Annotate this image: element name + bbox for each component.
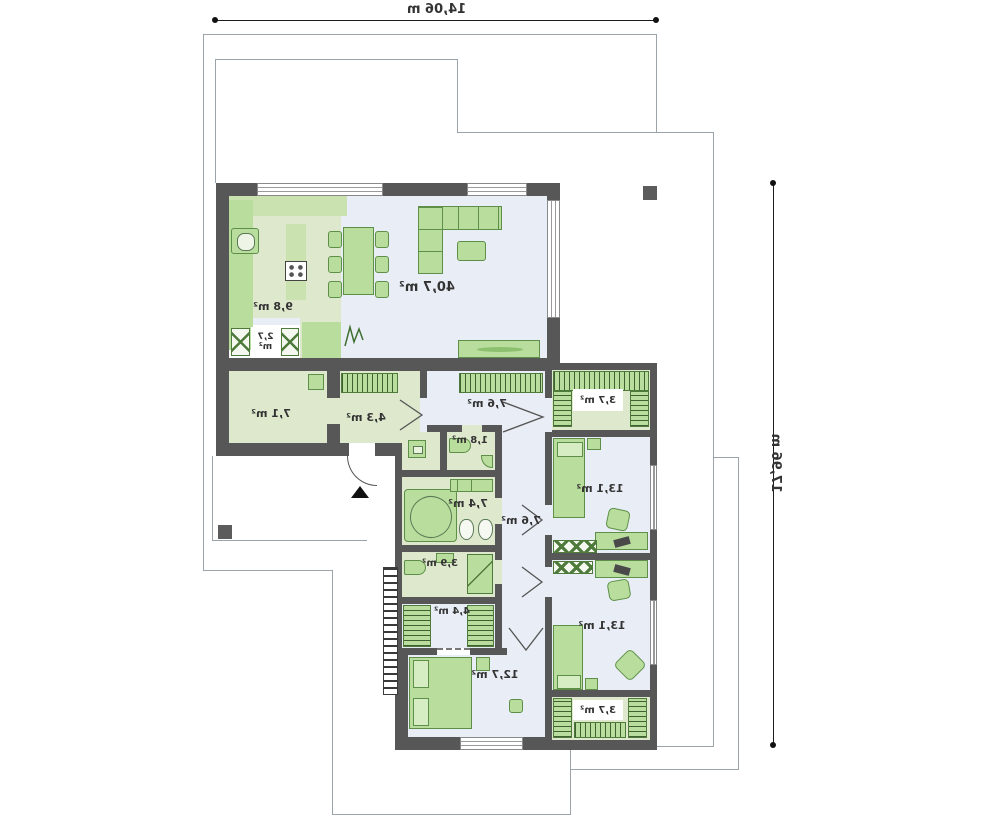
door-swing-symbol bbox=[522, 567, 544, 597]
nightstand bbox=[585, 678, 598, 690]
plot-line bbox=[332, 570, 333, 815]
sink-basin bbox=[237, 233, 255, 251]
kitchen-sink bbox=[231, 228, 259, 254]
dining-chair bbox=[375, 231, 389, 248]
corridor-lower-area-label: 7,6 m² bbox=[483, 515, 559, 527]
door-opening bbox=[545, 398, 552, 432]
floor-plan-canvas: 14,06 m 17,96 m bbox=[0, 0, 1000, 822]
pillow bbox=[413, 698, 429, 726]
utility-area-label: 7,1 m² bbox=[231, 408, 311, 420]
plot-line bbox=[570, 769, 738, 770]
laptop bbox=[613, 536, 631, 548]
plot-line bbox=[570, 746, 571, 815]
living-room-area-label: 40,7 m² bbox=[377, 281, 477, 295]
dashed-opening bbox=[437, 648, 470, 655]
site-marker-square bbox=[643, 186, 657, 200]
dimension-endpoint bbox=[212, 17, 218, 23]
pillow bbox=[413, 660, 429, 688]
dining-table bbox=[343, 227, 374, 295]
dining-chair bbox=[328, 256, 342, 273]
driveway-line bbox=[212, 456, 213, 540]
dining-chair bbox=[328, 231, 342, 248]
dining-chair bbox=[328, 281, 342, 298]
plot-line bbox=[713, 132, 714, 747]
wardrobe-shelves bbox=[628, 698, 647, 738]
door-opening bbox=[462, 425, 482, 432]
plot-line bbox=[332, 814, 571, 815]
plot-line bbox=[203, 570, 333, 571]
pillow bbox=[557, 442, 583, 457]
side-table bbox=[509, 699, 523, 713]
desk bbox=[595, 532, 648, 550]
wardrobe-shelves bbox=[630, 391, 649, 427]
boiler bbox=[308, 374, 324, 390]
window bbox=[650, 600, 657, 665]
bedroom-south-area-label: 13,1 m² bbox=[562, 620, 642, 632]
wc-area-label: 1,8 m² bbox=[430, 435, 510, 446]
plot-line bbox=[215, 59, 216, 183]
desk-chair bbox=[606, 578, 631, 602]
hall-wardrobe bbox=[341, 373, 398, 393]
door-opening bbox=[495, 560, 502, 584]
washing-machine bbox=[408, 440, 426, 458]
bed-single bbox=[553, 438, 585, 518]
door-swing-symbol bbox=[507, 628, 545, 652]
window bbox=[257, 183, 383, 196]
laptop bbox=[613, 564, 631, 576]
toilet bbox=[459, 519, 474, 540]
terrace-window bbox=[547, 200, 560, 318]
dimension-endpoint bbox=[770, 180, 776, 186]
low-wardrobe bbox=[553, 561, 593, 574]
dish bbox=[477, 347, 523, 352]
corridor-lower-floor bbox=[502, 425, 545, 648]
corridor-wardrobe bbox=[459, 373, 543, 393]
door-opening bbox=[545, 567, 552, 597]
desk-chair bbox=[605, 507, 631, 532]
plot-line bbox=[215, 59, 457, 60]
pantry-cabinet bbox=[231, 328, 250, 356]
entrance-door-opening bbox=[349, 443, 375, 456]
nightstand bbox=[587, 438, 601, 450]
coffee-table bbox=[457, 241, 486, 261]
dimension-width-label: 14,06 m bbox=[215, 3, 658, 17]
kitchen-area-label: 9,8 m² bbox=[233, 301, 313, 313]
plot-line bbox=[203, 34, 204, 570]
site-marker-square bbox=[218, 525, 232, 539]
pergola-strip bbox=[383, 567, 398, 695]
bedroom-master-area-label: 12,7 m² bbox=[455, 669, 535, 681]
bed-single bbox=[553, 625, 583, 690]
plant-icon bbox=[344, 324, 364, 350]
plot-line bbox=[203, 34, 657, 35]
low-wardrobe bbox=[553, 540, 597, 553]
bedroom-north-area-label: 13,1 m² bbox=[560, 483, 640, 495]
wardrobe-shelves bbox=[553, 698, 572, 738]
dimension-line-top bbox=[215, 20, 658, 21]
window bbox=[460, 737, 523, 750]
tv-sideboard bbox=[458, 340, 540, 358]
bed-double bbox=[409, 657, 472, 729]
sofa-vertical bbox=[418, 206, 443, 274]
window bbox=[650, 465, 657, 530]
plot-line bbox=[656, 34, 657, 133]
entrance-door-arc bbox=[347, 456, 377, 486]
pillow bbox=[557, 675, 581, 689]
pantry-cabinet bbox=[281, 328, 299, 356]
wardrobe-shelves bbox=[553, 391, 572, 427]
wardrobe-shelves bbox=[553, 371, 649, 391]
plot-line bbox=[457, 132, 714, 133]
shower-room-area-label: 3,9 m² bbox=[400, 558, 480, 569]
kitchen-lower-counter bbox=[302, 322, 341, 358]
bathroom-area-label: 7,4 m² bbox=[428, 498, 508, 510]
window bbox=[467, 183, 527, 196]
plot-line bbox=[657, 746, 714, 747]
entrance-arrow-icon bbox=[351, 486, 369, 498]
dimension-endpoint bbox=[770, 742, 776, 748]
pantry-area-label: 2,7m² bbox=[251, 327, 280, 357]
hall-area-label: 4,3 m² bbox=[326, 412, 406, 424]
wardrobe-south-area-label: 3,7 m² bbox=[573, 700, 623, 720]
plot-line bbox=[457, 59, 458, 133]
stove bbox=[285, 261, 307, 281]
desk bbox=[595, 560, 648, 578]
wardrobe-shelves bbox=[574, 722, 626, 738]
plot-line bbox=[738, 457, 739, 770]
driveway-line bbox=[212, 540, 367, 541]
bathroom-sink-counter bbox=[450, 479, 493, 492]
dimension-endpoint bbox=[653, 17, 659, 23]
dining-chair bbox=[375, 256, 389, 273]
dimension-height-label: 17,96 m bbox=[768, 413, 782, 513]
wardrobe-north-area-label: 3,7 m² bbox=[573, 389, 623, 411]
plot-line bbox=[713, 457, 739, 458]
corridor-upper-area-label: 7,6 m² bbox=[447, 398, 527, 410]
wardrobe-hall-area-label: 4,4 m² bbox=[412, 606, 492, 617]
